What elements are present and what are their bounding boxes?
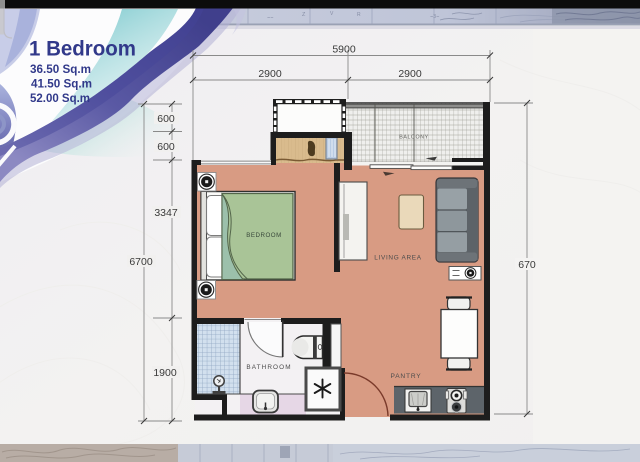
svg-text:2900: 2900: [258, 68, 282, 80]
svg-text:36.50 Sq.m: 36.50 Sq.m: [30, 64, 91, 76]
svg-text:BEDROOM: BEDROOM: [246, 232, 281, 239]
svg-text:670: 670: [518, 259, 536, 271]
svg-text:2900: 2900: [398, 68, 422, 80]
svg-text:600: 600: [157, 113, 175, 125]
svg-text:1 Bedroom: 1 Bedroom: [29, 38, 136, 61]
svg-text:R: R: [357, 12, 361, 18]
svg-text:41.50 Sq.m: 41.50 Sq.m: [31, 79, 92, 91]
svg-text:⌣⌣: ⌣⌣: [267, 15, 274, 21]
svg-text:PANTRY: PANTRY: [391, 373, 422, 380]
svg-text:1900: 1900: [153, 367, 177, 379]
svg-text:6700: 6700: [129, 256, 153, 268]
svg-text:⌣3⌣: ⌣3⌣: [430, 14, 439, 20]
svg-text:52.00 Sq.m: 52.00 Sq.m: [30, 93, 90, 105]
svg-text:3347: 3347: [154, 207, 178, 219]
svg-text:LIVING AREA: LIVING AREA: [374, 255, 422, 262]
svg-text:BATHROOM: BATHROOM: [246, 364, 291, 371]
svg-text:5900: 5900: [332, 44, 356, 56]
svg-text:BALCONY: BALCONY: [399, 135, 429, 141]
svg-text:600: 600: [157, 141, 175, 153]
